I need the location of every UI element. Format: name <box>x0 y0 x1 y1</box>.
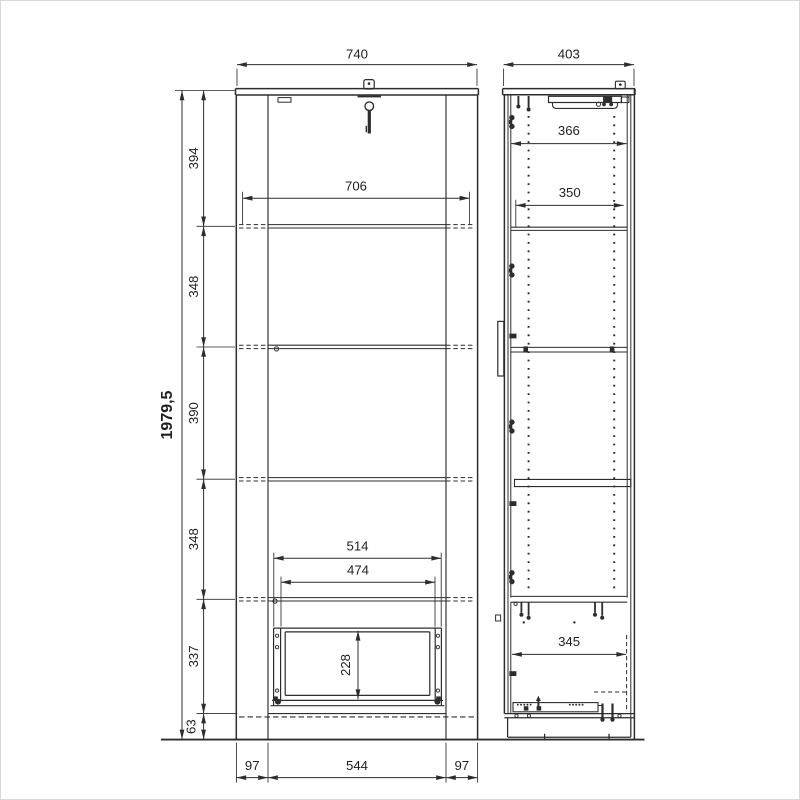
dim-label: 345 <box>558 634 580 649</box>
wall-bracket-dot <box>619 83 622 86</box>
extension-lines <box>175 69 634 783</box>
dim-drawer-inner-width: 474 <box>281 562 435 582</box>
dim-side-bottom-depth: 345 <box>512 634 626 654</box>
dim-label: 706 <box>345 178 367 193</box>
dim-label: 390 <box>186 402 201 424</box>
dim-label: 350 <box>559 185 581 200</box>
dim-label: 474 <box>347 562 369 577</box>
dim-label: 97 <box>454 758 469 773</box>
dim-label: 544 <box>346 758 368 773</box>
lock-and-key-icon <box>358 80 382 134</box>
dim-drawer-outer-width: 514 <box>274 538 441 558</box>
dim-label: 403 <box>558 46 580 61</box>
dim-label: 63 <box>184 719 199 734</box>
door-handle <box>498 321 504 376</box>
dim-label: 1979,5 <box>159 390 176 439</box>
dim-label: 348 <box>186 528 201 550</box>
dim-height-chain: 394 348 390 348 337 63 <box>184 91 204 740</box>
clothes-rail-icon <box>549 95 630 108</box>
dim-side-depth: 403 <box>504 46 634 64</box>
technical-drawing-page: 740 403 706 366 350 345 514 474 <box>0 0 800 800</box>
dim-drawer-front-height: 228 <box>338 631 358 699</box>
top-screws <box>516 96 613 112</box>
dim-plinth-chain: 97 544 97 <box>236 758 477 778</box>
dim-label: 740 <box>346 46 368 61</box>
bottom-panel-screws <box>514 602 604 623</box>
door-edge-mark <box>496 615 501 621</box>
side-open-shelf <box>515 479 631 486</box>
dim-label: 337 <box>186 645 201 667</box>
dim-label: 394 <box>186 147 201 169</box>
dim-label: 348 <box>186 276 201 298</box>
side-base <box>504 714 634 740</box>
top-connector-fitting <box>278 98 291 103</box>
cabinet-dimension-drawing: 740 403 706 366 350 345 514 474 <box>1 1 799 799</box>
dim-label: 228 <box>338 654 353 676</box>
dim-label: 97 <box>245 758 260 773</box>
dim-label: 366 <box>558 123 580 138</box>
hinge-icons <box>509 115 515 584</box>
dim-side-shelf-depth: 350 <box>516 185 624 205</box>
dim-front-width: 740 <box>237 46 477 64</box>
dim-label: 514 <box>346 538 368 553</box>
dim-front-inner-width: 706 <box>243 178 470 198</box>
dim-total-height: 1979,5 <box>159 91 182 740</box>
hidden-drawer-outline <box>594 635 627 712</box>
shelf-support-pins <box>509 334 614 676</box>
